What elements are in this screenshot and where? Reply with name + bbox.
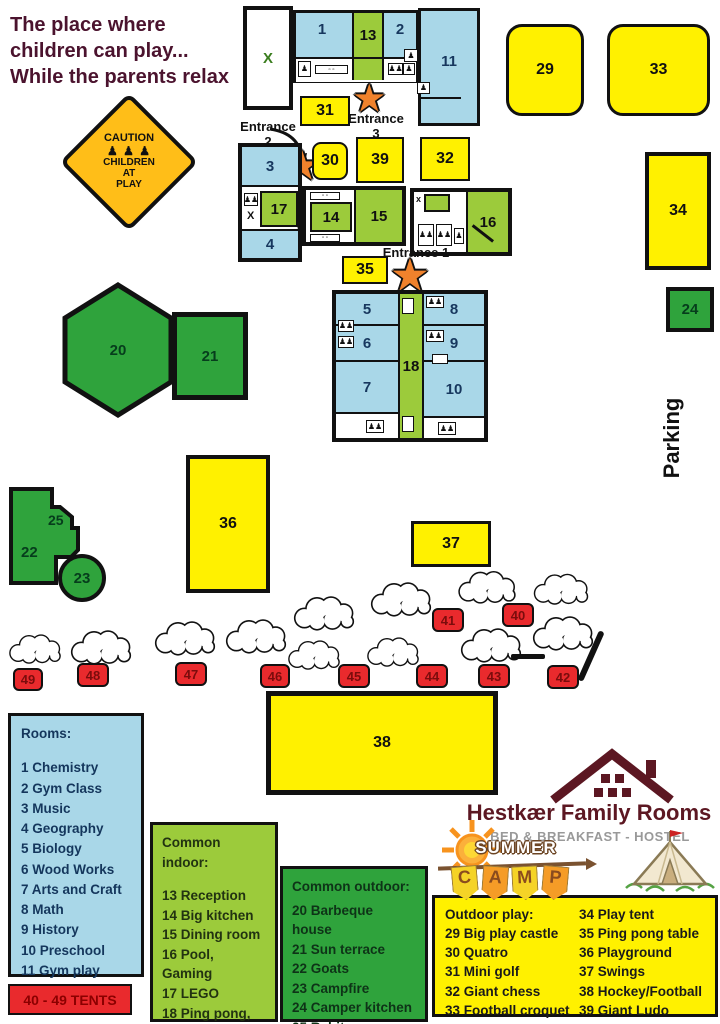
legend-item: 36 Playground: [579, 943, 705, 962]
camp-letter-p: P: [541, 865, 570, 901]
legend-item: 8 Math: [21, 900, 131, 920]
family-restroom-icon: ♟♟: [366, 420, 384, 433]
bush-icon: [288, 590, 360, 632]
family-restroom-icon: ♟♟: [338, 320, 354, 332]
legend-item: 14 Big kitchen: [162, 906, 266, 926]
map-item-32-giant-chess: 32: [420, 137, 470, 181]
family-restroom-icon: ♟♟: [388, 63, 403, 75]
building-room-11: 11: [418, 8, 480, 126]
building-top-wing: 13 1 2 ♟ ▫ ▫ ♟♟ ♟: [293, 10, 419, 83]
map-item-29-big-play-castle: 29: [506, 24, 584, 116]
hostel-site-map: The place where children can play... Whi…: [0, 0, 720, 1024]
caution-line-3: PLAY: [116, 180, 142, 191]
legend-rooms: Rooms: 1 Chemistry 2 Gym Class 3 Music 4…: [8, 713, 144, 977]
rabbits-pen-label: 25: [48, 512, 64, 528]
map-item-36-playground: 36: [186, 455, 270, 593]
title-line-3: While the parents relax: [10, 64, 260, 90]
tent-40: 40: [502, 603, 534, 627]
family-restroom-icon: ♟♟: [244, 193, 258, 206]
fixture-icon: [432, 354, 448, 364]
legend-item: 21 Sun terrace: [292, 940, 416, 960]
legend-item: 18 Ping pong, Wii LEGO and toys: [162, 1004, 266, 1024]
family-restroom-icon: ♟: [403, 63, 415, 75]
room-15-dining: 15: [354, 190, 402, 242]
legend-common-indoor-title: Common indoor:: [162, 833, 266, 872]
legend-item: 23 Campfire: [292, 979, 416, 999]
room-17-lego: 17: [260, 191, 298, 227]
legend-outdoor-play: Outdoor play: 29 Big play castle 30 Quat…: [432, 895, 718, 1017]
caution-sign-text: CAUTION ♟ ♟ ♟ CHILDREN AT PLAY: [55, 88, 203, 236]
map-item-21-sun-terrace: 21: [172, 312, 248, 400]
roof-logo-icon: [545, 748, 679, 804]
legend-item: 35 Ping pong table: [579, 924, 705, 943]
room-11-gym-play: 11: [421, 41, 477, 81]
legend-item: 32 Giant chess: [445, 982, 571, 1001]
x-room-label: X: [247, 10, 289, 106]
map-item-23-campfire: 23: [58, 554, 106, 602]
legend-outdoor-play-left-column: Outdoor play: 29 Big play castle 30 Quat…: [445, 905, 571, 1007]
fence-line: [511, 654, 545, 659]
legend-item: 6 Wood Works: [21, 860, 131, 880]
bush-icon: [528, 610, 598, 652]
legend-item: 25 Rabits: [292, 1018, 416, 1024]
bush-icon: [453, 565, 521, 605]
tent-45: 45: [338, 664, 370, 688]
parking-label: Parking: [650, 383, 694, 493]
legend-item: 17 LEGO: [162, 984, 266, 1004]
legend-item: 7 Arts and Craft: [21, 880, 131, 900]
kitchen-counter-icon: ▫ ▫: [310, 234, 340, 242]
camp-letter-m: M: [511, 865, 539, 900]
room-13-reception: 13: [352, 13, 384, 59]
restroom-icon: ♟: [454, 228, 464, 244]
bush-icon: [360, 632, 426, 668]
map-item-37-swings: 37: [411, 521, 491, 567]
x-mark: x: [416, 195, 421, 204]
room-7-arts-craft: 7: [336, 362, 398, 414]
x-mark: X: [247, 211, 254, 222]
legend-outdoor-play-title: Outdoor play:: [445, 905, 571, 924]
restroom-icon: ♟: [404, 49, 418, 62]
family-restroom-icon: ♟♟: [426, 330, 444, 342]
legend-item: 37 Swings: [579, 962, 705, 981]
goats-pen-label: 22: [21, 544, 38, 561]
map-item-20-barbeque-house: 20: [62, 282, 174, 418]
legend-item: 16 Pool, Gaming: [162, 945, 266, 984]
room-4-geography: 4: [242, 229, 298, 258]
page-title: The place where children can play... Whi…: [10, 12, 260, 90]
door-icon: [402, 298, 414, 314]
legend-item: 34 Play tent: [579, 905, 705, 924]
title-line-2: children can play...: [10, 38, 260, 64]
camp-letter-c: C: [451, 865, 480, 901]
bush-icon: [281, 635, 347, 671]
hexagon-label: 20: [62, 282, 174, 418]
legend-item: 4 Geography: [21, 819, 131, 839]
camp-letter-a: A: [481, 865, 509, 901]
building-x-room: X: [243, 6, 293, 110]
family-restroom-icon: ♟♟: [438, 422, 456, 435]
legend-item: 39 Giant Ludo: [579, 1001, 705, 1020]
map-item-39-giant-ludo: 39: [356, 137, 404, 183]
bush-icon: [150, 614, 220, 658]
legend-item: 15 Dining room: [162, 925, 266, 945]
corridor-to-entrance-3: [352, 59, 384, 80]
x-mark: x: [296, 224, 302, 234]
bush-icon: [366, 575, 436, 619]
tent-46: 46: [260, 664, 290, 688]
bush-icon: [5, 628, 65, 666]
legend-item: 1 Chemistry: [21, 758, 131, 778]
map-item-34-play-tent: 34: [645, 152, 711, 270]
family-restroom-icon: ♟♟: [338, 336, 354, 348]
legend-item: 2 Gym Class: [21, 779, 131, 799]
bush-icon: [528, 568, 594, 606]
legend-item: 13 Reception: [162, 886, 266, 906]
family-restroom-icon: ♟♟: [418, 224, 434, 246]
building-main-rooms: 5 6 7 18 8 9 10 ♟♟ ♟♟ ♟♟ ♟♟ ♟♟ ♟♟: [332, 290, 488, 442]
family-restroom-icon: ♟♟: [436, 224, 452, 246]
map-item-38-hockey-football: 38: [266, 691, 498, 795]
legend-outdoor-play-right-column: 34 Play tent 35 Ping pong table 36 Playg…: [579, 905, 705, 1007]
restroom-icon: ♟: [417, 82, 430, 94]
summer-word: SUMMER: [458, 838, 574, 858]
small-green-room: [424, 194, 450, 212]
room-1-chemistry: 1: [302, 17, 342, 41]
title-line-1: The place where: [10, 12, 260, 38]
tent-43: 43: [478, 664, 510, 688]
room-14-big-kitchen: 14: [310, 202, 352, 232]
legend-common-outdoor-title: Common outdoor:: [292, 877, 416, 897]
legend-common-outdoor: Common outdoor: 20 Barbeque house 21 Sun…: [280, 866, 428, 1022]
room-2-gym-class: 2: [386, 17, 414, 41]
legend-item: 10 Preschool: [21, 941, 131, 961]
map-item-30-quatro: 30: [312, 142, 348, 180]
room-16-pool-gaming: 16: [466, 192, 508, 252]
legend-common-indoor: Common indoor: 13 Reception 14 Big kitch…: [150, 822, 278, 1022]
legend-item: 38 Hockey/Football: [579, 982, 705, 1001]
tent-47: 47: [175, 662, 207, 686]
tent-49: 49: [13, 668, 43, 691]
tent-42: 42: [547, 665, 579, 689]
tent-44: 44: [416, 664, 448, 688]
door-icon: [402, 416, 414, 432]
room-3-music: 3: [242, 147, 298, 187]
building-rooms-3-17-4: 3 ♟♟ X 17 4: [238, 143, 302, 262]
map-item-24-camper-kitchen: 24: [666, 287, 714, 332]
restroom-icon: ♟: [298, 61, 311, 77]
legend-tents: 40 - 49 TENTS: [8, 984, 132, 1015]
stick-arrowhead: [586, 858, 597, 870]
interior-wall: [421, 97, 461, 99]
tent-41: 41: [432, 608, 464, 632]
legend-item: 5 Biology: [21, 839, 131, 859]
legend-item: 29 Big play castle: [445, 924, 571, 943]
legend-item: 33 Football croquet: [445, 1001, 571, 1020]
legend-item: 22 Goats: [292, 959, 416, 979]
kitchen-counter-icon: ▫ ▫: [315, 65, 348, 74]
legend-item: 9 History: [21, 920, 131, 940]
family-restroom-icon: ♟♟: [426, 296, 444, 308]
legend-rooms-title: Rooms:: [21, 724, 131, 744]
legend-item: 30 Quatro: [445, 943, 571, 962]
tent-illustration-icon: [622, 826, 718, 896]
legend-item: 31 Mini golf: [445, 962, 571, 981]
camp-pennants: C A M P: [452, 866, 568, 900]
caution-children-sign: CAUTION ♟ ♟ ♟ CHILDREN AT PLAY: [55, 88, 203, 236]
bush-icon: [66, 624, 136, 666]
legend-item: 3 Music: [21, 799, 131, 819]
tent-48: 48: [77, 663, 109, 687]
building-rooms-14-15: ▫ ▫ 14 ▫ ▫ 15: [302, 186, 406, 246]
legend-item: 24 Camper kitchen: [292, 998, 416, 1018]
entrance-3-word: Entrance: [344, 112, 408, 127]
room-10-preschool: 10: [424, 362, 484, 418]
kitchen-counter-icon: ▫ ▫: [310, 192, 340, 200]
map-item-33-football-croquet: 33: [607, 24, 710, 116]
legend-item: 20 Barbeque house: [292, 901, 416, 940]
map-item-31-mini-golf: 31: [300, 96, 350, 126]
